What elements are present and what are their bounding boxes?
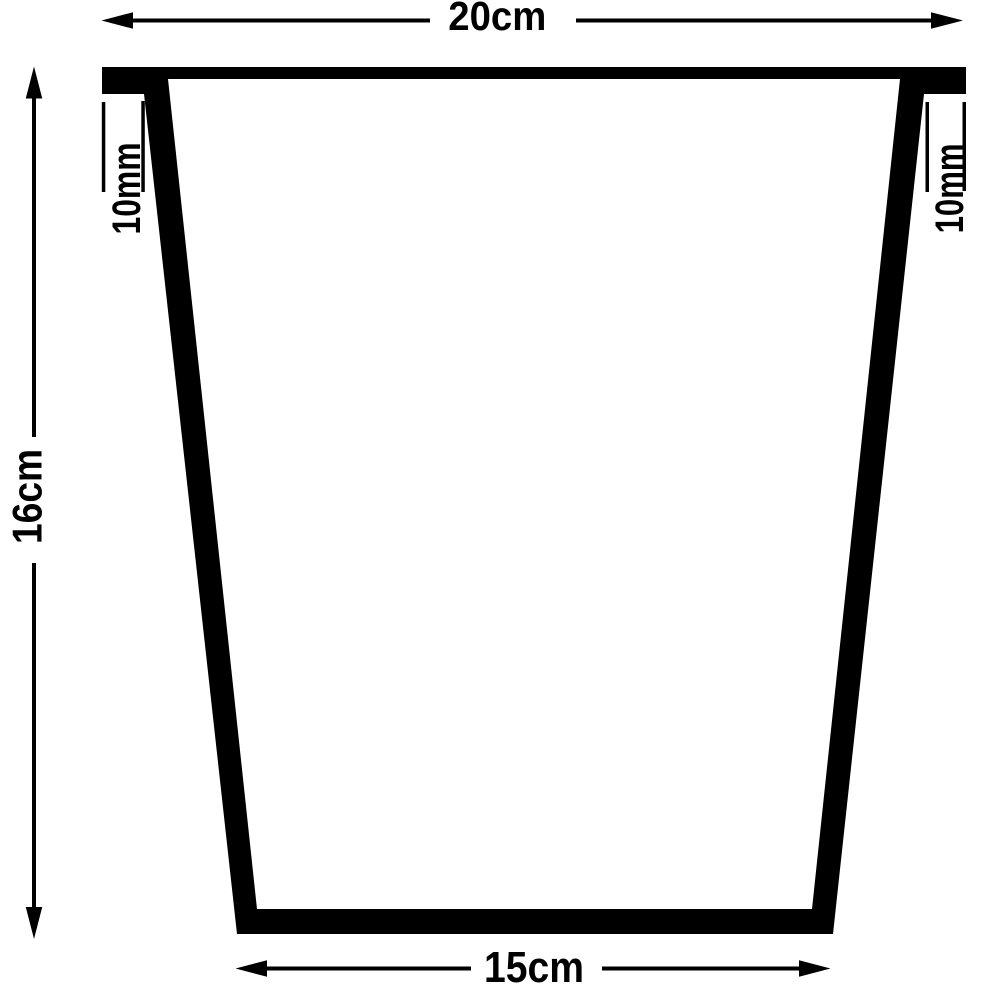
svg-text:20cm: 20cm [448, 0, 546, 39]
svg-text:16cm: 16cm [4, 449, 51, 544]
svg-text:10mm: 10mm [105, 143, 149, 235]
svg-text:10mm: 10mm [928, 143, 972, 233]
svg-text:15cm: 15cm [484, 943, 584, 984]
